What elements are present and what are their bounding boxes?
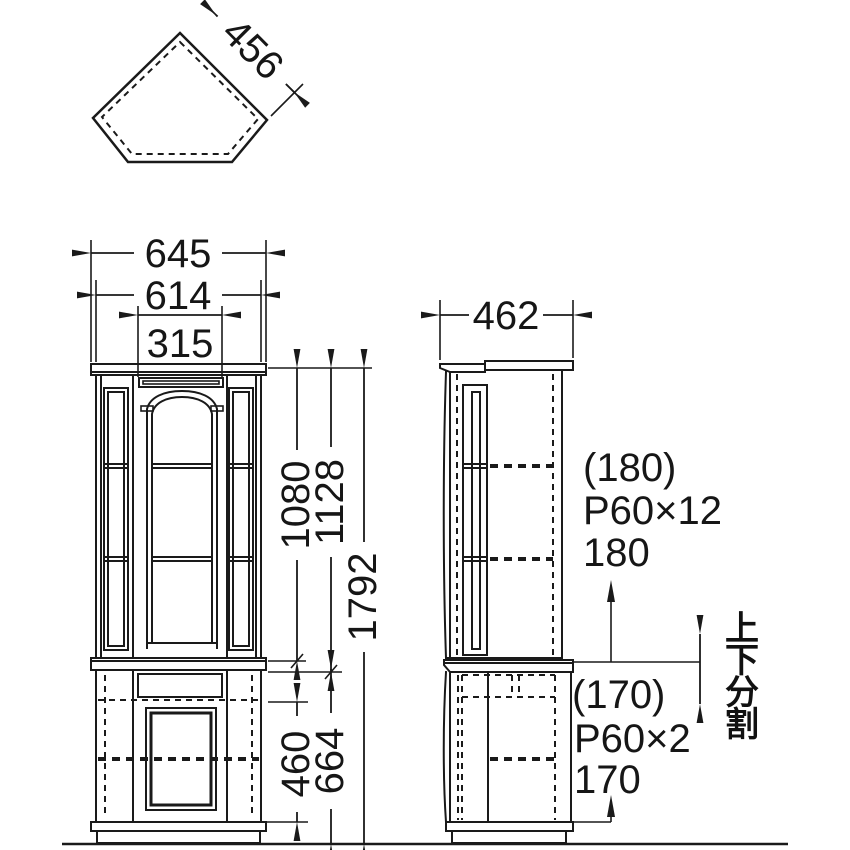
side-top-board: [485, 361, 573, 370]
front-plinth-base: [97, 831, 260, 843]
front-waist-moulding: [91, 658, 266, 670]
split-label-char-4: 割: [725, 705, 759, 745]
height-dimensions: 1080 1128 1792 460 664: [266, 368, 385, 844]
technical-drawing: 456: [0, 0, 850, 850]
note-180: 180: [583, 531, 650, 575]
dim-462-label: 462: [473, 294, 540, 338]
front-left-side-panel: [104, 388, 128, 650]
side-plinth-moulding: [446, 822, 573, 831]
note-180-paren: (180): [583, 446, 676, 490]
front-arched-door: [141, 391, 223, 648]
note-p60x2: P60×2: [574, 717, 691, 761]
side-plinth-base: [452, 831, 566, 843]
front-width-dimensions: 645 614 315: [91, 232, 266, 377]
side-upper-body: [444, 370, 562, 658]
front-plinth-moulding: [91, 822, 266, 831]
side-top-front-moulding: [440, 364, 485, 372]
front-frieze-panel: [139, 378, 223, 387]
front-drawer: [138, 674, 222, 697]
dim-456: 456: [203, 0, 304, 116]
upper-shelf-note: (180) P60×12 180: [573, 446, 722, 662]
side-view: [440, 361, 573, 843]
dim-315-label: 315: [147, 322, 214, 366]
side-width-dimension: 462: [440, 294, 573, 360]
side-lower-body: [444, 672, 571, 822]
front-upper-carcass: [96, 375, 261, 658]
front-right-side-panel: [229, 388, 253, 650]
note-p60x12: P60×12: [583, 489, 722, 533]
top-view: 456: [93, 0, 304, 162]
dim-645-label: 645: [145, 232, 212, 276]
side-waist-moulding: [444, 660, 573, 672]
dim-1792-label: 1792: [341, 553, 385, 642]
drawing-page: 456: [0, 0, 850, 850]
lower-shelf-note: (170) P60×2 170: [572, 673, 691, 822]
split-annotation: 上 下 分 割: [700, 609, 759, 745]
dim-614-label: 614: [145, 274, 212, 318]
dim-664-label: 664: [308, 728, 352, 795]
dim-1128-label: 1128: [308, 459, 352, 545]
front-view: [91, 364, 266, 843]
front-lower-carcass: [96, 670, 261, 822]
note-170-paren: (170): [572, 673, 665, 717]
note-170: 170: [574, 758, 641, 802]
